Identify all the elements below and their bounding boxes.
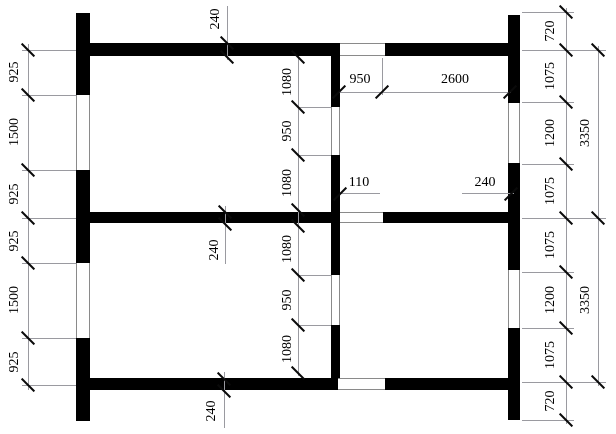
dim-label-mid-lower-0: 1080 [281, 235, 295, 263]
dim-label-right-inner-2: 1200 [544, 119, 558, 147]
wall-partition-lower-a [331, 223, 340, 275]
dim-label-right-inner-4: 1075 [544, 231, 558, 259]
floor-plan: 925 1500 925 925 1500 925 720 1075 1200 … [0, 0, 616, 434]
dim-label-left-2: 925 [8, 184, 22, 205]
wall-partition-upper-b [331, 155, 340, 212]
dim-label-right-wall-thickness: 240 [475, 176, 496, 190]
dim-label-mid-upper-0: 1080 [281, 68, 295, 96]
dim-label-left-1: 1500 [8, 118, 22, 146]
dim-label-right-outer-0: 3350 [579, 119, 593, 147]
dim-label-right-inner-7: 720 [544, 391, 558, 412]
extension-line [298, 275, 331, 276]
dim-label-left-0: 925 [8, 62, 22, 83]
window-bottom-wall [338, 378, 385, 390]
dim-label-right-inner-6: 1075 [544, 341, 558, 369]
extension-line [298, 325, 331, 326]
wall-middle-right-segment [383, 212, 508, 223]
extension-line [298, 107, 331, 108]
window-right-upper [508, 103, 520, 163]
dim-label-top-room-0: 950 [350, 73, 371, 87]
extension-line [340, 193, 380, 194]
dim-label-right-inner-5: 1200 [544, 286, 558, 314]
wall-bottom-left-segment [90, 378, 338, 390]
dim-label-left-5: 925 [8, 352, 22, 373]
window-right-lower [508, 270, 520, 328]
dim-label-bottom-wall-thickness: 240 [205, 401, 219, 422]
wall-partition-upper-a [331, 56, 340, 107]
dim-label-right-inner-0: 720 [544, 21, 558, 42]
extension-line [298, 155, 331, 156]
dim-label-left-3: 925 [8, 231, 22, 252]
wall-top-left-segment [90, 43, 340, 56]
window-top-wall [340, 43, 385, 56]
dim-label-top-room-1: 2600 [441, 73, 469, 87]
dim-label-left-4: 1500 [8, 286, 22, 314]
dim-label-mid-lower-1: 950 [281, 290, 295, 311]
dim-label-mid-lower-2: 1080 [281, 335, 295, 363]
dim-label-mid-wall-thickness: 240 [208, 240, 222, 261]
opening-middle-wall [340, 212, 383, 223]
opening-partition-lower [331, 275, 340, 325]
wall-bottom-right-segment [385, 378, 508, 390]
window-left-lower [76, 263, 90, 338]
dim-label-right-inner-1: 1075 [544, 62, 558, 90]
dim-label-mid-upper-2: 1080 [281, 169, 295, 197]
dim-label-right-inner-3: 1075 [544, 177, 558, 205]
opening-partition-upper [331, 107, 340, 155]
extension-line [338, 92, 511, 93]
dim-label-right-outer-1: 3350 [579, 286, 593, 314]
wall-left-column [76, 13, 90, 421]
dim-label-partition-thickness: 110 [349, 176, 369, 190]
window-left-upper [76, 95, 90, 170]
wall-partition-lower-b [331, 325, 340, 378]
dimension-line [227, 6, 228, 60]
dim-label-top-wall-thickness: 240 [209, 9, 223, 30]
wall-right-column [508, 15, 520, 420]
extension-line [462, 193, 514, 194]
wall-top-right-segment [385, 43, 508, 56]
dim-label-mid-upper-1: 950 [281, 121, 295, 142]
